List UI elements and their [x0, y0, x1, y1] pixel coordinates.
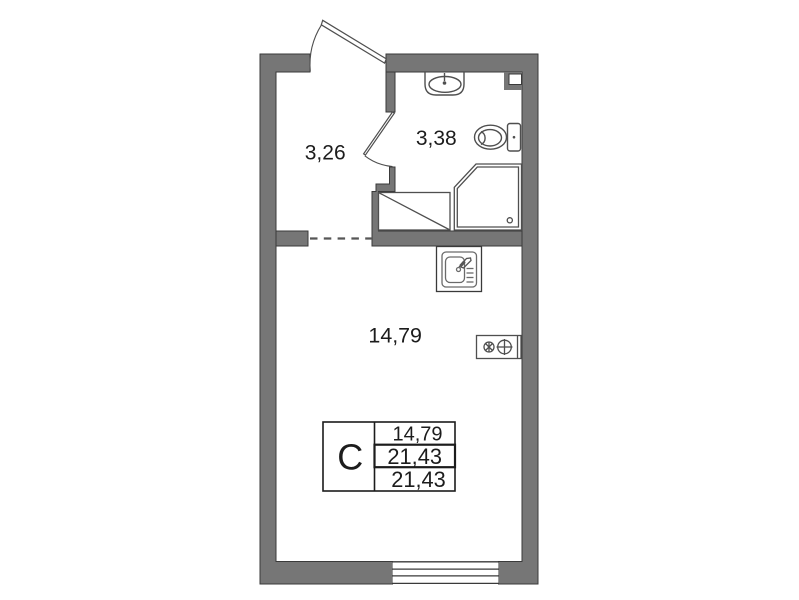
- svg-text:21,43: 21,43: [391, 467, 446, 492]
- svg-text:14,79: 14,79: [368, 323, 422, 347]
- svg-text:14,79: 14,79: [392, 424, 442, 446]
- svg-text:3,38: 3,38: [416, 127, 457, 150]
- svg-text:С: С: [337, 437, 363, 478]
- svg-text:21,43: 21,43: [387, 444, 442, 469]
- svg-text:3,26: 3,26: [305, 142, 346, 165]
